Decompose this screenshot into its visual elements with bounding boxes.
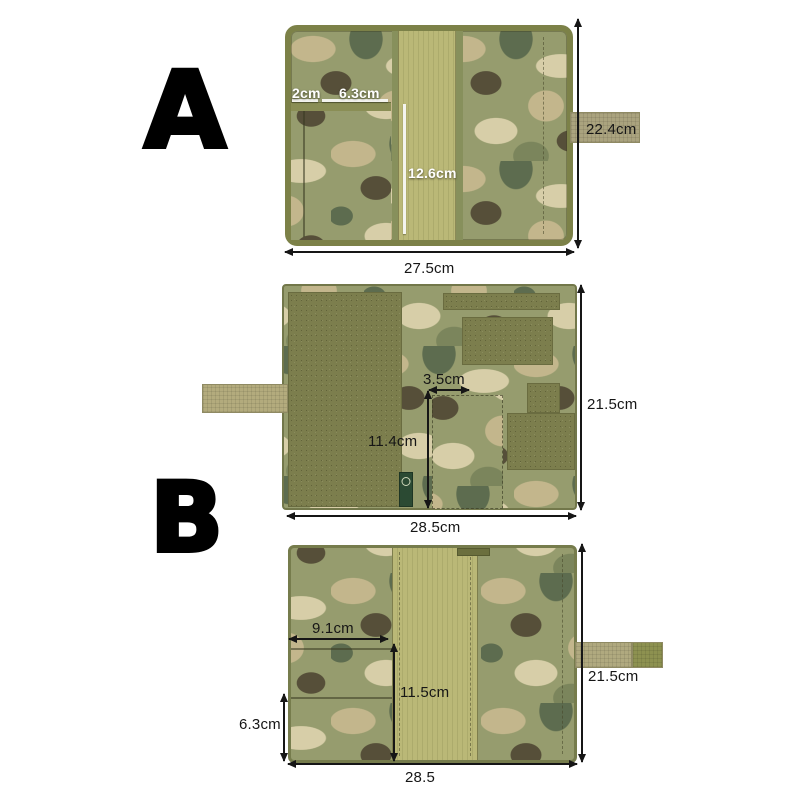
product-b-strap bbox=[202, 384, 288, 413]
product-b-interior-cover bbox=[288, 545, 577, 763]
dim-arrow-lower-pocket bbox=[283, 694, 285, 761]
panel-top-tab bbox=[457, 548, 490, 556]
product-dimension-sheet: A B 2cm 6.3cm 12.6cm 22.4cm 27.5cm bbox=[0, 0, 800, 800]
right-page-stitch bbox=[562, 554, 563, 754]
dim-arrow-b-int-height bbox=[581, 544, 583, 762]
velcro-square-small bbox=[527, 383, 560, 413]
velcro-strip-top bbox=[443, 293, 560, 310]
upper-pocket-seam bbox=[291, 648, 392, 650]
fold-strip-right bbox=[456, 31, 463, 240]
dim-arrow-b-int-width bbox=[288, 763, 577, 765]
dim-label-b-ext-width: 28.5cm bbox=[410, 519, 460, 536]
product-b-interior-strap bbox=[575, 642, 632, 668]
dim-arrow-b-ext-width bbox=[287, 515, 576, 517]
patch-pocket bbox=[432, 395, 503, 509]
dim-label-center-panel: 11.5cm bbox=[400, 684, 449, 701]
dim-arrow-a-width bbox=[285, 251, 574, 253]
panel-stitch-right bbox=[470, 552, 471, 756]
dim-label-b-ext-height: 21.5cm bbox=[587, 396, 637, 413]
dim-arrow-a-height bbox=[577, 19, 579, 248]
velcro-rect-upper bbox=[462, 317, 553, 365]
brand-logo-icon bbox=[402, 477, 411, 486]
elastic-band bbox=[398, 31, 456, 240]
dim-label-pen-slot: 2cm bbox=[292, 85, 321, 101]
dim-label-elastic-band: 12.6cm bbox=[408, 165, 457, 181]
velcro-field-large bbox=[288, 292, 402, 507]
center-panel bbox=[392, 548, 478, 760]
product-b-interior-strap-tip bbox=[632, 642, 663, 668]
dim-arrow-b-ext-height bbox=[580, 285, 582, 510]
brand-tag bbox=[399, 472, 413, 507]
dim-arrow-patch-width bbox=[429, 389, 469, 391]
dim-label-lower-pocket: 6.3cm bbox=[239, 716, 281, 733]
card-pocket bbox=[291, 111, 391, 240]
panel-stitch-left bbox=[399, 552, 400, 756]
stitch-line bbox=[543, 37, 544, 234]
section-a-label: A bbox=[144, 58, 226, 164]
dim-arrow-patch-height bbox=[427, 391, 429, 508]
velcro-rect-lower bbox=[507, 413, 575, 470]
dim-label-card-pocket: 6.3cm bbox=[339, 85, 380, 101]
dim-label-pocket-width: 9.1cm bbox=[312, 620, 354, 637]
product-a-cover bbox=[285, 25, 573, 246]
pen-slot-seam bbox=[303, 111, 305, 237]
dim-label-b-int-width: 28.5 bbox=[405, 769, 435, 786]
dim-arrow-pocket-width bbox=[289, 638, 388, 640]
dim-label-patch-height: 11.4cm bbox=[368, 433, 417, 450]
dim-line-elastic-band bbox=[403, 104, 406, 234]
dim-arrow-center-panel bbox=[393, 644, 395, 761]
dim-label-a-height: 22.4cm bbox=[586, 121, 636, 138]
lower-pocket-seam bbox=[291, 697, 392, 699]
section-b-label: B bbox=[150, 470, 223, 566]
dim-label-b-int-height: 21.5cm bbox=[588, 668, 638, 685]
dim-label-a-width: 27.5cm bbox=[404, 260, 454, 277]
dim-label-patch-width: 3.5cm bbox=[423, 371, 465, 388]
